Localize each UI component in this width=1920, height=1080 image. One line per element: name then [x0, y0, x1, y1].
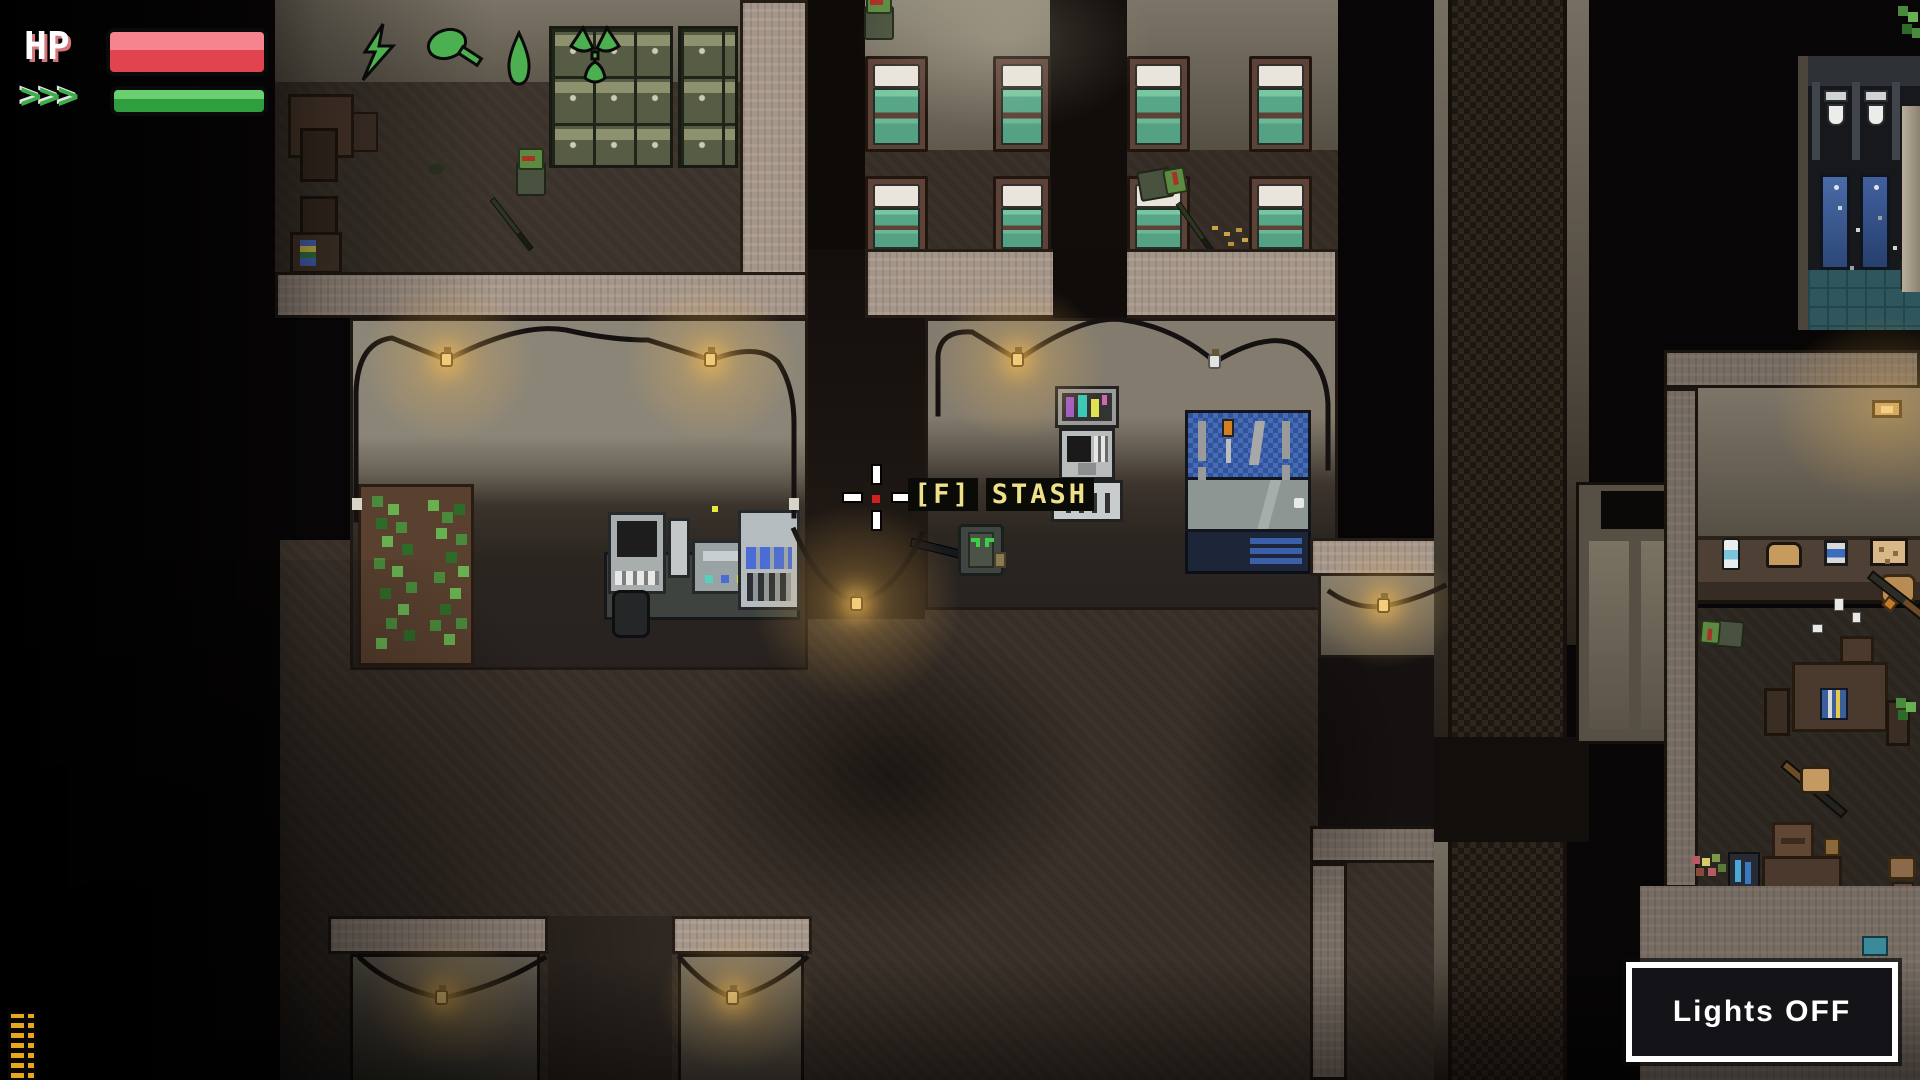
- wall-panel: [1589, 541, 1629, 729]
- wall: [672, 916, 812, 954]
- wall: [1664, 350, 1920, 388]
- toilet-tank: [1824, 90, 1848, 102]
- water-bottle: [1722, 538, 1740, 570]
- sign-glyph: [1091, 399, 1099, 417]
- radiation-icon: [563, 22, 627, 94]
- lit-wall: [1902, 106, 1920, 292]
- hp-bar-fill: [110, 32, 264, 72]
- radio-console: [738, 510, 800, 610]
- ladder: [8, 1012, 36, 1080]
- bunk-bed: [865, 176, 928, 256]
- sign-glyph: [1078, 395, 1087, 417]
- storage-lockers: [678, 26, 738, 168]
- cage-fence: [1448, 0, 1567, 737]
- player-character: [936, 516, 1008, 588]
- cracker-holes: [1879, 547, 1884, 552]
- sign-glyph: [1066, 397, 1074, 417]
- drawers: [1250, 538, 1302, 544]
- light-bulb: [1377, 598, 1390, 613]
- bandit-head: [1800, 766, 1832, 794]
- screen: [617, 521, 657, 557]
- game-screen: [F] STASH HP >>> Lights OFF: [0, 0, 1920, 1080]
- machine-grid: [1094, 436, 1108, 462]
- corridor-floor: [548, 916, 672, 1080]
- wall: [1664, 388, 1698, 888]
- zombie-corpse: [1699, 620, 1743, 651]
- cup: [1812, 624, 1823, 633]
- cracker: [1870, 538, 1908, 566]
- head: [1888, 856, 1916, 880]
- tool-file: [1249, 421, 1265, 465]
- corridor: [1050, 0, 1127, 249]
- prompt-action: STASH: [986, 478, 1094, 511]
- water-drop-icon: [503, 30, 535, 88]
- bread-loaf: [1766, 542, 1802, 568]
- keypad: [615, 571, 659, 585]
- chair: [300, 128, 338, 182]
- supply-box: [1820, 688, 1848, 720]
- console-keys: [747, 573, 791, 601]
- bandit-leg: [1824, 838, 1840, 856]
- computer-tower: [668, 518, 690, 578]
- tool-shaft: [1226, 439, 1231, 463]
- handle: [1294, 498, 1304, 508]
- floor-stain: [428, 164, 444, 174]
- stamina-bar-fill: [114, 90, 264, 112]
- stall-divider: [1812, 82, 1820, 160]
- debris: [1838, 206, 1842, 210]
- cage-fence: [1448, 842, 1567, 1080]
- shell-casings: [1212, 226, 1218, 230]
- bunk-bed: [1127, 56, 1190, 152]
- wall: [740, 0, 808, 276]
- machine-screen: [1067, 436, 1091, 462]
- plant: [428, 500, 439, 511]
- bunk-bed: [993, 56, 1051, 152]
- tool-pliers: [1282, 421, 1290, 459]
- floor-shadow: [1434, 737, 1589, 842]
- planter-box: [358, 484, 474, 666]
- stall-back: [1808, 56, 1920, 86]
- prompt-key: [F]: [908, 478, 978, 511]
- shower-head: [1834, 185, 1839, 190]
- bunk-bed: [993, 176, 1051, 256]
- cooler-box: [1862, 936, 1888, 956]
- shower-stall: [1820, 174, 1850, 270]
- wall: [275, 272, 808, 318]
- bunk-bed: [1249, 56, 1312, 152]
- ladder-rail: [28, 1014, 34, 1078]
- backpack-marking: [971, 538, 980, 547]
- tool-wrench: [1198, 421, 1206, 461]
- light-bulb: [850, 596, 863, 611]
- stash-machine-body[interactable]: [1059, 428, 1115, 480]
- lit-room: [678, 954, 804, 1080]
- bunk-bed: [865, 56, 928, 152]
- light-bulb: [1011, 352, 1024, 367]
- wall-column: [1434, 0, 1448, 737]
- cabinet: [290, 232, 342, 274]
- plant: [372, 496, 383, 507]
- computer-monitor: [608, 512, 666, 594]
- cup: [1834, 598, 1844, 611]
- machine-slot: [1078, 463, 1096, 475]
- crate: [1772, 822, 1814, 860]
- toilet: [1827, 104, 1845, 126]
- chair: [1764, 688, 1790, 736]
- food-drumstick-icon: [425, 26, 489, 80]
- workbench-cabinet: [1185, 532, 1311, 574]
- cup: [1852, 612, 1861, 623]
- toilet: [1867, 104, 1885, 126]
- flowers: [1692, 856, 1700, 864]
- canned-food: [1824, 540, 1848, 566]
- console-display: [746, 547, 792, 569]
- side-table: [352, 112, 378, 152]
- wall: [328, 916, 548, 954]
- wall-column: [1434, 842, 1448, 1080]
- light-bulb: [435, 990, 448, 1005]
- light-bulb: [726, 990, 739, 1005]
- tool-pegboard: [1185, 410, 1311, 480]
- ladder-rail: [11, 1014, 24, 1078]
- player-pouch: [994, 552, 1006, 568]
- workbench-top: [1185, 480, 1311, 532]
- backpack-marking: [985, 538, 994, 547]
- bottles: [1735, 860, 1741, 882]
- zombie: [862, 0, 892, 38]
- lamp-light: [1881, 406, 1893, 413]
- hp-label: HP: [24, 24, 70, 68]
- indicator-led: [712, 506, 718, 512]
- light-bulb: [704, 352, 717, 367]
- chair: [1840, 636, 1874, 664]
- alcove-dark: [1318, 658, 1442, 826]
- light-bulb-off: [1208, 354, 1221, 369]
- foliage: [1898, 6, 1908, 16]
- hud: HP >>>: [0, 0, 300, 140]
- office-chair: [612, 590, 650, 638]
- lights-toggle-button[interactable]: Lights OFF: [1626, 962, 1898, 1062]
- shower-stall: [1860, 174, 1890, 270]
- desk: [1762, 856, 1842, 890]
- tool-screwdriver: [1222, 419, 1234, 437]
- bottle-cabinet: [1728, 852, 1760, 890]
- sign-glyph: [1102, 395, 1107, 405]
- wall-lamp: [1872, 400, 1902, 418]
- interaction-prompt: [F] STASH: [908, 478, 1094, 511]
- stamina-bar: [110, 86, 268, 116]
- stash-machine-sign[interactable]: [1055, 386, 1119, 428]
- foliage: [1896, 698, 1906, 708]
- bunk-bed: [1249, 176, 1312, 256]
- alcove-wall: [1318, 576, 1442, 658]
- wall: [1310, 863, 1347, 1080]
- cabinet-contents: [300, 240, 316, 266]
- stamina-chevrons: >>>: [20, 76, 76, 117]
- lightning-icon: [357, 22, 399, 84]
- zombie: [514, 148, 544, 194]
- corridor: [808, 0, 865, 249]
- hp-bar: [106, 28, 268, 76]
- wall-opening: [1601, 491, 1671, 529]
- toilet-tank: [1864, 90, 1888, 102]
- shadow: [0, 0, 320, 1080]
- shower-head: [1874, 185, 1879, 190]
- light-bulb: [440, 352, 453, 367]
- doorway: [1053, 249, 1127, 318]
- leds: [705, 575, 713, 583]
- lit-room: [350, 954, 540, 1080]
